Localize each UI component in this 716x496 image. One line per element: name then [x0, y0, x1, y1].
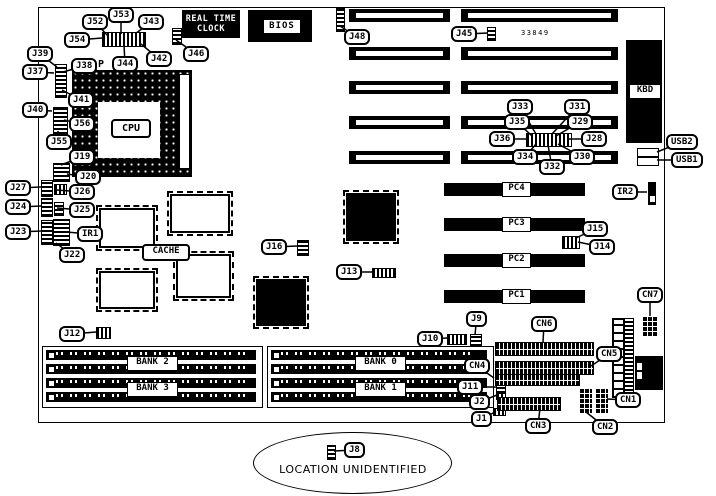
cache-label-text: CACHE [152, 246, 179, 256]
isa-slot [349, 47, 450, 60]
usb-port-1 [637, 157, 659, 166]
j24-connector [41, 198, 53, 217]
callout-j54: J54 [64, 32, 90, 48]
callout-j38: J38 [71, 58, 97, 74]
callout-j11: J11 [457, 379, 483, 395]
callout-cn2: CN2 [592, 419, 618, 435]
bank-label: BANK 3 [127, 382, 178, 397]
cpu-socket-lever-slot [179, 74, 190, 169]
callout-j25: J25 [69, 202, 95, 218]
callout-j39: J39 [27, 46, 53, 62]
callout-j52: J52 [82, 14, 108, 30]
bank-label: BANK 2 [127, 356, 178, 371]
callout-cn7: CN7 [637, 287, 663, 303]
callout-j20: J20 [75, 169, 101, 185]
j26-connector [54, 184, 67, 195]
socket-mark: P [97, 59, 105, 70]
isa-slot [349, 9, 450, 22]
callout-cn4: CN4 [464, 358, 490, 374]
callout-j14: J14 [589, 239, 615, 255]
cn2-connector [580, 388, 592, 413]
real-time-clock-chip: REAL TIME CLOCK [182, 10, 240, 38]
pci-slot-label: PC3 [502, 217, 531, 232]
ir1-j22-jumper-block [53, 219, 70, 246]
bank-label: BANK 0 [355, 356, 406, 371]
callout-j24: J24 [5, 199, 31, 215]
location-note-text: LOCATION UNIDENTIFIED [278, 463, 428, 476]
callout-j28: J28 [581, 131, 607, 147]
power-connector [635, 356, 663, 390]
callout-ir2: IR2 [612, 184, 638, 200]
callout-usb1: USB1 [671, 152, 703, 168]
callout-j32: J32 [539, 159, 565, 175]
callout-j46: J46 [183, 46, 209, 62]
callout-j22: J22 [59, 247, 85, 263]
j46-connector [172, 28, 182, 45]
isa-slot [349, 116, 450, 129]
j16-connector [297, 240, 309, 256]
callout-cn6: CN6 [531, 316, 557, 332]
j23-connector [41, 220, 53, 245]
chipset-chip-1 [346, 193, 396, 241]
rtc-label-line1: REAL TIME [182, 14, 240, 24]
isa-slot [349, 151, 450, 164]
callout-j44: J44 [112, 56, 138, 72]
pci-slot-label: PC1 [502, 289, 531, 304]
cn3-header [497, 397, 561, 411]
callout-j1: J1 [471, 411, 492, 427]
kbd-label-text: KBD [637, 85, 653, 95]
callout-j31: J31 [564, 99, 590, 115]
cache-label: CACHE [142, 244, 190, 261]
cpu-label: CPU [111, 119, 151, 138]
cn5-header [495, 361, 594, 375]
callout-j29: J29 [567, 114, 593, 130]
j27-connector [41, 180, 53, 197]
bank-label: BANK 1 [355, 382, 406, 397]
callout-j35: J35 [504, 114, 530, 130]
power-pin-1 [637, 363, 642, 370]
j12-connector [96, 327, 111, 339]
cn7-connector [643, 316, 658, 336]
callout-j37: J37 [22, 64, 48, 80]
j25-connector [54, 202, 64, 216]
cpu-label-text: CPU [122, 123, 140, 134]
chipset-chip-2 [256, 279, 306, 326]
callout-cn3: CN3 [525, 418, 551, 434]
ir2-connector-pin [649, 195, 656, 203]
j13-connector [372, 268, 396, 278]
callout-j9: J9 [466, 311, 487, 327]
j8-connector [327, 445, 336, 460]
callout-j8: J8 [344, 442, 365, 458]
callout-j26: J26 [69, 184, 95, 200]
callout-j34: J34 [512, 149, 538, 165]
cache-chip-2 [99, 208, 155, 248]
callout-j16: J16 [261, 239, 287, 255]
j9-connector [470, 334, 482, 347]
callout-j27: J27 [5, 180, 31, 196]
callout-j43: J43 [138, 14, 164, 30]
j19-j20-jumper-block [53, 163, 70, 182]
callout-j56: J56 [69, 116, 95, 132]
cn1-connector [596, 388, 608, 413]
callout-j40: J40 [22, 102, 48, 118]
usb-port-2 [637, 148, 659, 157]
callout-usb2: USB2 [666, 134, 698, 150]
ir2-connector [648, 182, 656, 205]
callout-cn5: CN5 [596, 346, 622, 362]
cn6-header [495, 342, 594, 356]
callout-j36: J36 [489, 131, 515, 147]
power-pin-2 [637, 372, 642, 379]
bios-label-box: BIOS [263, 19, 301, 34]
j28-j36-jumper-cluster [526, 133, 572, 147]
cache-chip-4 [99, 271, 155, 309]
bios-label: BIOS [269, 21, 295, 31]
edge-pin-strip [624, 318, 634, 396]
j52-j44-jumper-row [102, 32, 146, 47]
callout-j45: J45 [451, 26, 477, 42]
rtc-label-line2: CLOCK [182, 24, 240, 34]
callout-j30: J30 [569, 149, 595, 165]
callout-j42: J42 [146, 51, 172, 67]
callout-j15: J15 [582, 221, 608, 237]
j10-connector [447, 334, 467, 345]
j45-connector [487, 27, 496, 41]
pci-slot-label: PC2 [502, 253, 531, 268]
callout-j33: J33 [507, 99, 533, 115]
callout-j13: J13 [336, 264, 362, 280]
callout-j53: J53 [108, 7, 134, 23]
kbd-label: KBD [629, 84, 661, 99]
callout-ir1: IR1 [77, 226, 103, 242]
callout-j23: J23 [5, 224, 31, 240]
callout-j10: J10 [417, 331, 443, 347]
callout-j2: J2 [469, 394, 490, 410]
callout-j55: J55 [46, 134, 72, 150]
j14-j15-jumper-block [562, 236, 580, 249]
isa-slot [461, 116, 618, 129]
isa-slot [461, 9, 618, 22]
j40-j56-jumper-block [53, 107, 68, 135]
isa-slot [349, 81, 450, 94]
cn4-header [495, 374, 580, 386]
motherboard-diagram: REAL TIME CLOCK BIOS 33849 P CPU CACHE K… [0, 0, 716, 496]
isa-slot [461, 81, 618, 94]
cache-chip-1 [170, 194, 230, 233]
callout-j48: J48 [344, 29, 370, 45]
board-number: 33849 [521, 29, 550, 37]
callout-cn1: CN1 [615, 392, 641, 408]
callout-j19: J19 [69, 149, 95, 165]
pci-slot-label: PC4 [502, 182, 531, 197]
callout-j41: J41 [68, 92, 94, 108]
callout-j12: J12 [59, 326, 85, 342]
isa-slot [461, 47, 618, 60]
j48-connector [336, 8, 345, 32]
j37-j39-jumper-block [55, 64, 67, 98]
